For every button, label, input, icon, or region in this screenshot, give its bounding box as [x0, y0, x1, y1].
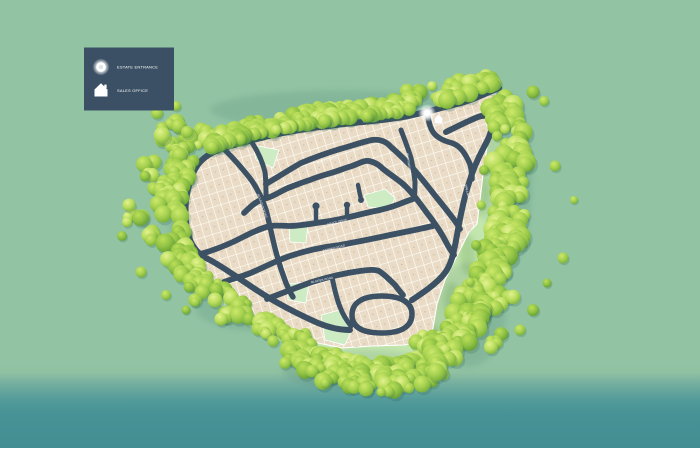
svg-text:ESTATE ENTRANCE: ESTATE ENTRANCE — [117, 64, 158, 69]
svg-text:SALES OFFICE: SALES OFFICE — [117, 88, 148, 93]
